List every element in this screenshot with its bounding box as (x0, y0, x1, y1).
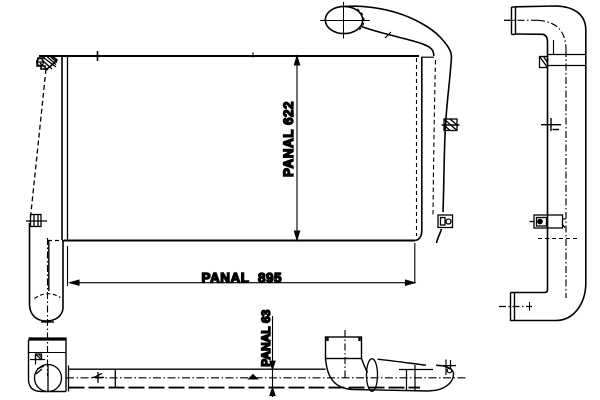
svg-text:PANAL 63: PANAL 63 (259, 309, 273, 366)
svg-text:PANAL 622: PANAL 622 (281, 101, 296, 177)
svg-text:PANAL 895: PANAL 895 (202, 270, 283, 285)
